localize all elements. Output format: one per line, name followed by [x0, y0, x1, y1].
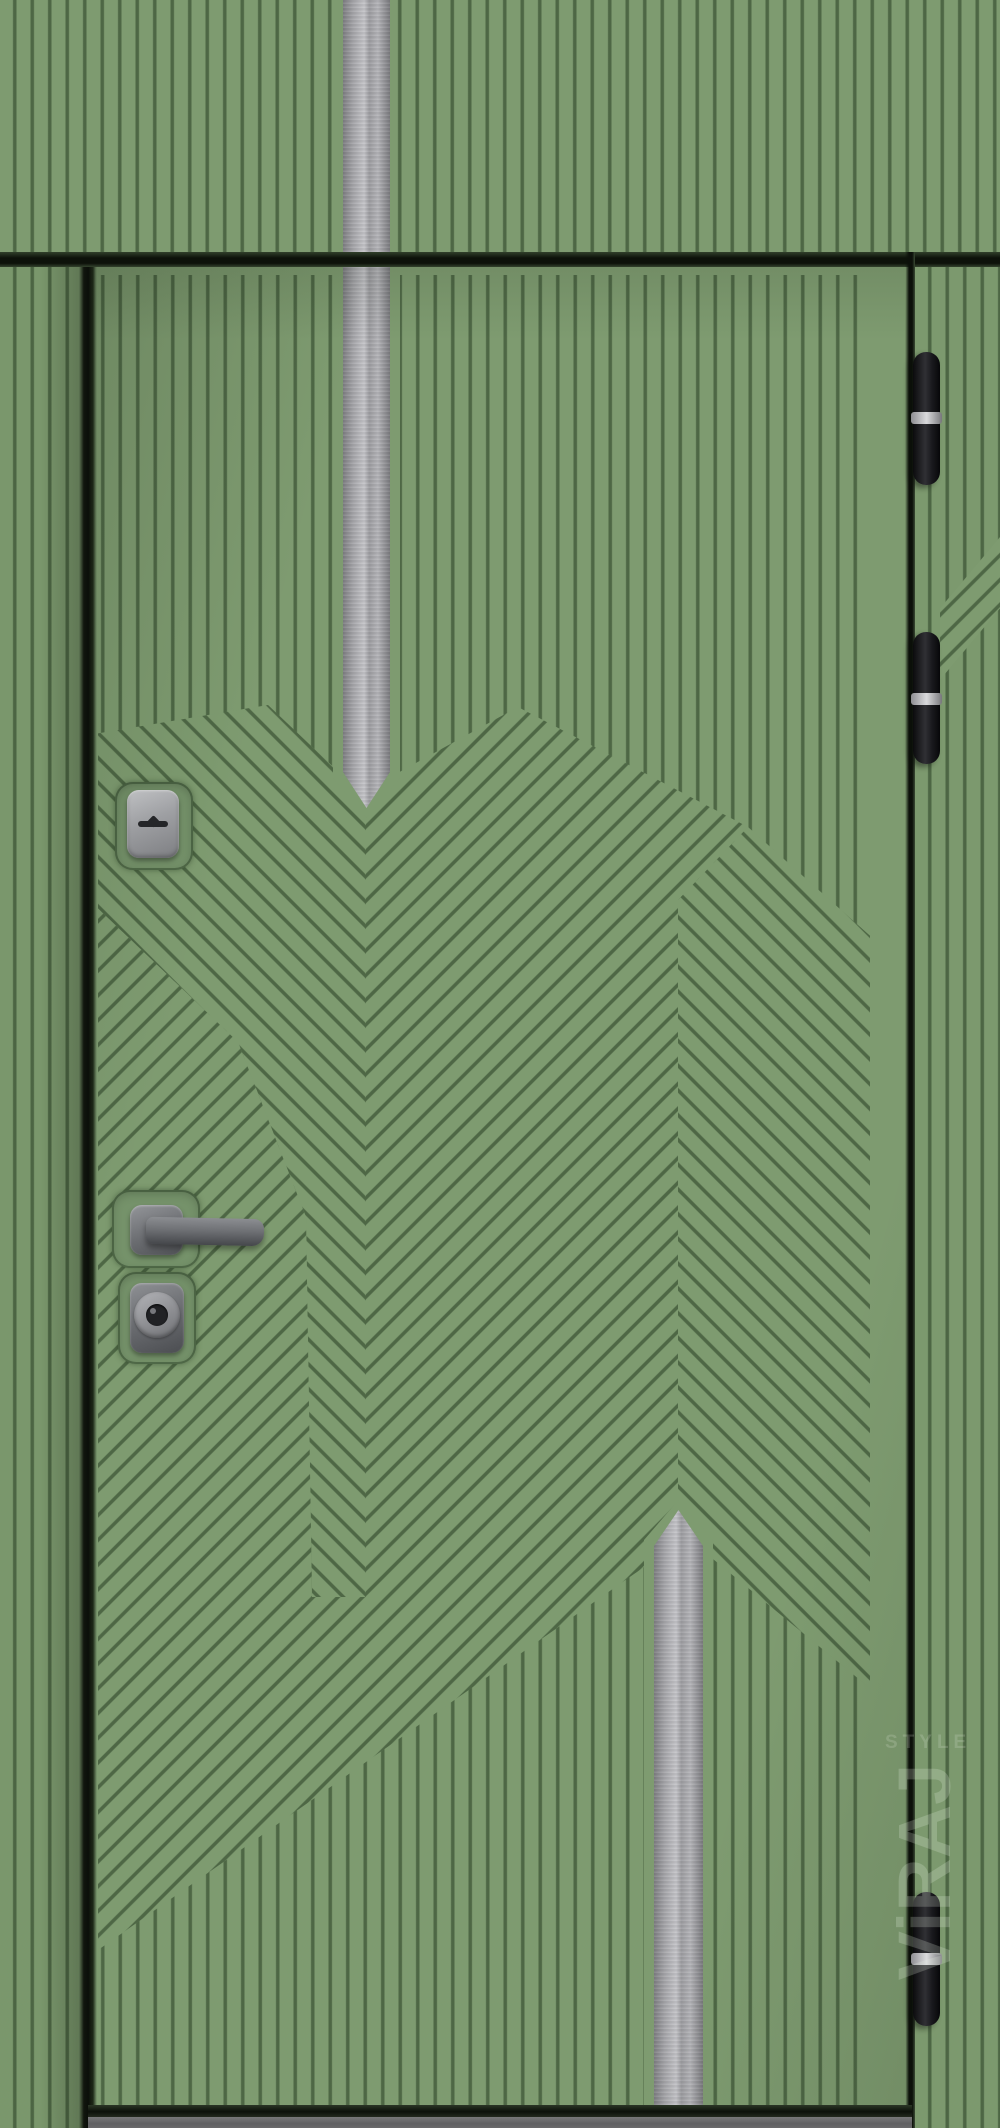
leaf-shading — [88, 267, 905, 2105]
door-product-photo: STYLE ViRAJ — [0, 0, 1000, 2128]
frame-seam-horizontal — [0, 252, 1000, 267]
frame-left-shadow — [0, 267, 88, 2128]
door-threshold — [88, 2117, 912, 2128]
transom-panel — [0, 0, 1000, 252]
frame-seam-left — [79, 267, 88, 2128]
door-leaf — [88, 267, 905, 2105]
leaf-left-edge — [88, 267, 97, 2105]
door-hinge-middle — [913, 632, 940, 764]
hinge-ring-top — [911, 412, 942, 424]
watermark-text: ViRAJ — [880, 1702, 970, 2042]
leaf-bottom-edge — [88, 2105, 912, 2117]
hinge-ring-middle — [911, 693, 942, 705]
door-hinge-top — [913, 352, 940, 485]
transom-steel-insert — [343, 0, 390, 252]
